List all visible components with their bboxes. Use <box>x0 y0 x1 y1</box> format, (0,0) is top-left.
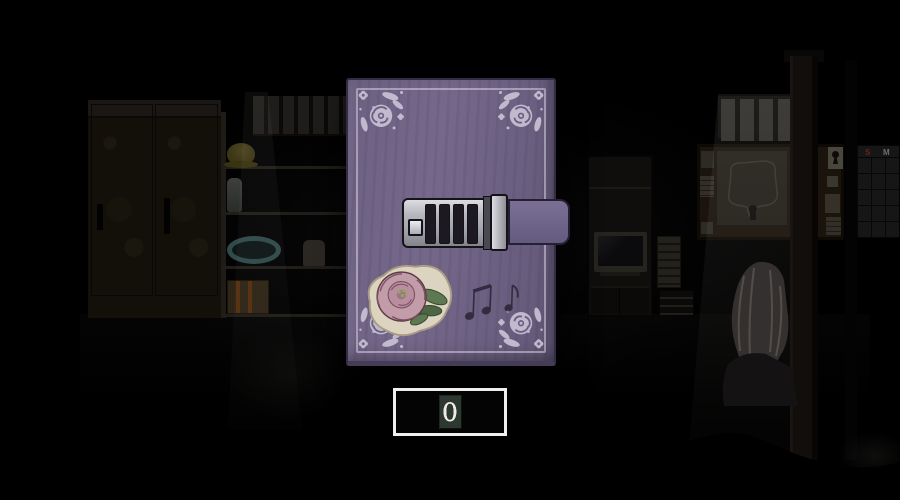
rose-sticker-icon <box>358 255 461 344</box>
tv-screen <box>598 236 643 266</box>
floral-stencil-icon <box>353 85 409 141</box>
tv-shelf-doors <box>591 286 649 314</box>
game-screen: S M <box>0 0 900 500</box>
music-notes-icon <box>458 274 525 326</box>
calendar-header-sun: S <box>865 148 870 157</box>
pinned-note <box>826 217 841 235</box>
lock-strap <box>508 199 570 245</box>
small-jar <box>303 240 325 266</box>
tv-monitor <box>594 232 647 272</box>
wardrobe-handle-right <box>164 198 170 234</box>
wardrobe-door-left <box>91 104 153 296</box>
pinned-note <box>827 176 838 187</box>
tv-shelf-board <box>589 187 651 189</box>
tv-stand <box>600 272 640 276</box>
keyhole-icon <box>832 151 839 158</box>
keyhole-paper <box>828 147 843 169</box>
lock-dial[interactable] <box>467 204 478 244</box>
wardrobe <box>88 100 221 318</box>
calendar-header-mon: M <box>883 148 890 157</box>
calendar-grid <box>858 158 899 237</box>
lock-release-button[interactable] <box>408 219 423 236</box>
door-split <box>619 288 620 316</box>
wall-poster <box>657 236 681 288</box>
lock-dial[interactable] <box>453 204 464 244</box>
lock-clasp <box>490 194 508 251</box>
code-digit-cell[interactable]: 0 <box>439 395 462 429</box>
wardrobe-handle-left <box>97 204 103 230</box>
lock-dial[interactable] <box>425 204 436 244</box>
wall-calendar: S M <box>857 145 900 238</box>
calendar-header: S M <box>858 146 899 158</box>
pinned-note <box>825 194 840 213</box>
vent-cabinet <box>659 290 694 316</box>
lock-dial[interactable] <box>439 204 450 244</box>
diary-cover <box>346 78 556 366</box>
code-input-box: 0 0 0 0 <box>393 388 507 436</box>
pinned-note <box>701 151 714 168</box>
floral-stencil-icon <box>493 85 549 141</box>
shelf-frame <box>221 112 226 318</box>
